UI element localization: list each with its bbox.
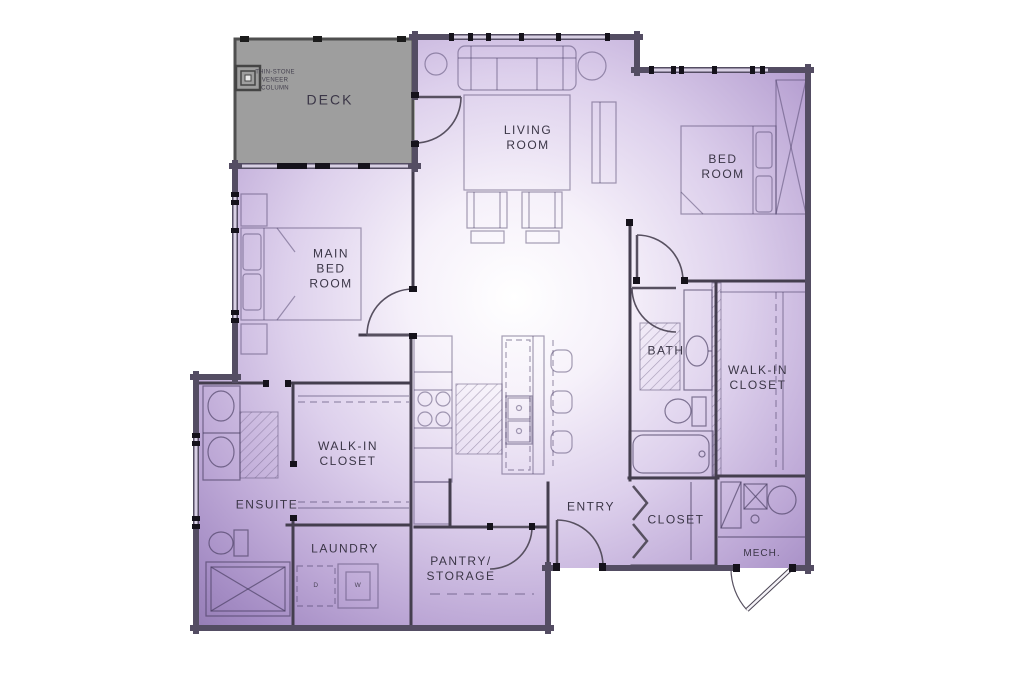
room-label-pantry-storage: PANTRY/ STORAGE (423, 554, 499, 584)
room-label-ensuite: ENSUITE (221, 498, 313, 513)
floor-plan-drawing (0, 0, 1024, 683)
room-label-main-bed-room: MAIN BED ROOM (303, 247, 359, 292)
washer-label: W (348, 582, 368, 590)
room-label-walk-in-closet-left: WALK-IN CLOSET (309, 439, 387, 469)
room-label-closet: CLOSET (640, 513, 712, 528)
floor-plan-page: DECK LIVING ROOM BED ROOM MAIN BED ROOM … (0, 0, 1024, 683)
column-note-label: THIN-STONE VENEER COLUMN (250, 69, 300, 92)
room-label-living-room: LIVING ROOM (496, 123, 560, 153)
room-label-walk-in-closet-right: WALK-IN CLOSET (719, 363, 797, 393)
room-label-entry: ENTRY (555, 500, 627, 515)
room-label-deck: DECK (270, 91, 390, 109)
room-label-bed-room: BED ROOM (695, 152, 751, 182)
dryer-label: D (306, 582, 326, 590)
room-label-bath: BATH (636, 344, 696, 359)
room-label-mech: MECH. (731, 548, 793, 561)
suite-entry-door (731, 568, 792, 610)
room-label-laundry: LAUNDRY (299, 542, 391, 557)
